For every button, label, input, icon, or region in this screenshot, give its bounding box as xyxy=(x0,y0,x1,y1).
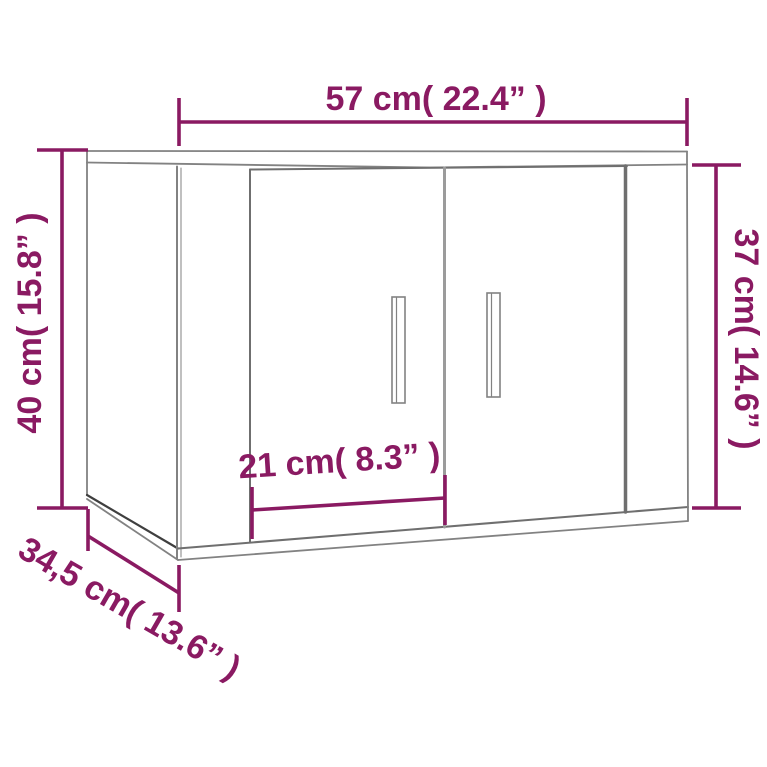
height-right-dimension-label: 37 cm( 14.6” ) xyxy=(727,228,765,449)
diagram-canvas: 57 cm( 22.4” ) 40 cm( 15.8” ) 37 cm( 14.… xyxy=(0,0,767,767)
door-handle-right xyxy=(487,293,500,397)
cabinet-bottom-left-outer-edge xyxy=(87,499,178,560)
door-handle-left-body xyxy=(392,297,405,403)
cabinet-top-back-edge xyxy=(87,151,687,152)
dimension-lines xyxy=(37,98,741,612)
width-dimension-label: 57 cm( 22.4” ) xyxy=(325,80,546,118)
depth-dimension-label: 34,5 cm( 13.6” ) xyxy=(12,530,247,688)
cabinet-left-bottom-edge xyxy=(87,495,178,549)
door-handle-left xyxy=(392,297,405,403)
cabinet-dimension-diagram: 57 cm( 22.4” ) 40 cm( 15.8” ) 37 cm( 14.… xyxy=(0,0,767,767)
door-width-dimension-label: 21 cm( 8.3” ) xyxy=(237,436,441,487)
cabinet-right-edge xyxy=(687,165,688,522)
dimension-labels: 57 cm( 22.4” ) 40 cm( 15.8” ) 37 cm( 14.… xyxy=(11,80,765,687)
door-handle-right-body xyxy=(487,293,500,397)
door-width-dimension-line xyxy=(252,498,445,510)
cabinet xyxy=(87,151,688,560)
height-left-dimension-label: 40 cm( 15.8” ) xyxy=(11,212,49,433)
